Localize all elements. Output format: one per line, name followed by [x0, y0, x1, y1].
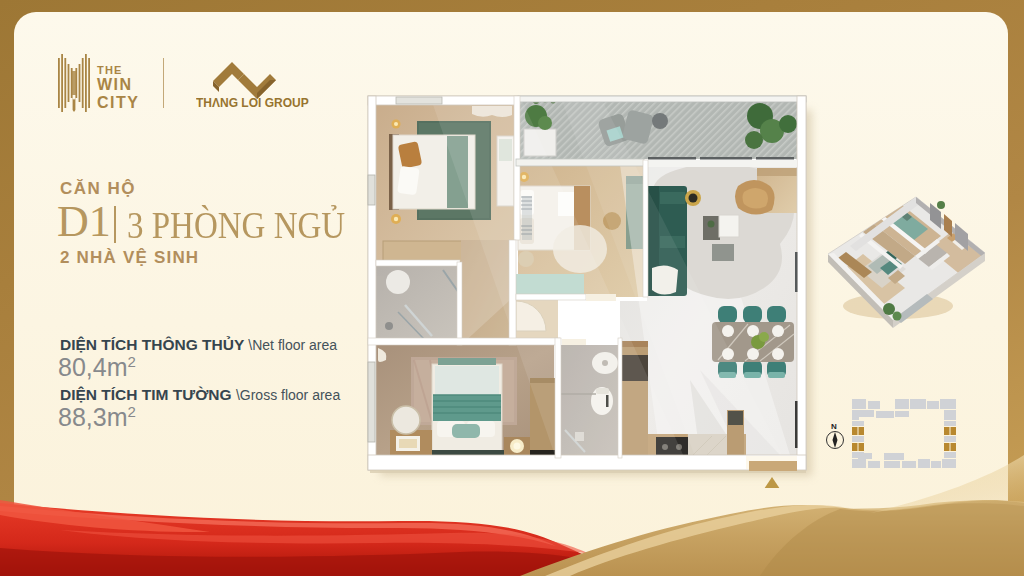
svg-text:THE: THE [97, 64, 123, 76]
svg-text:THΛNG LOI GROUP: THΛNG LOI GROUP [196, 96, 309, 110]
svg-text:WIN: WIN [97, 76, 133, 93]
svg-text:CITY: CITY [97, 94, 139, 111]
